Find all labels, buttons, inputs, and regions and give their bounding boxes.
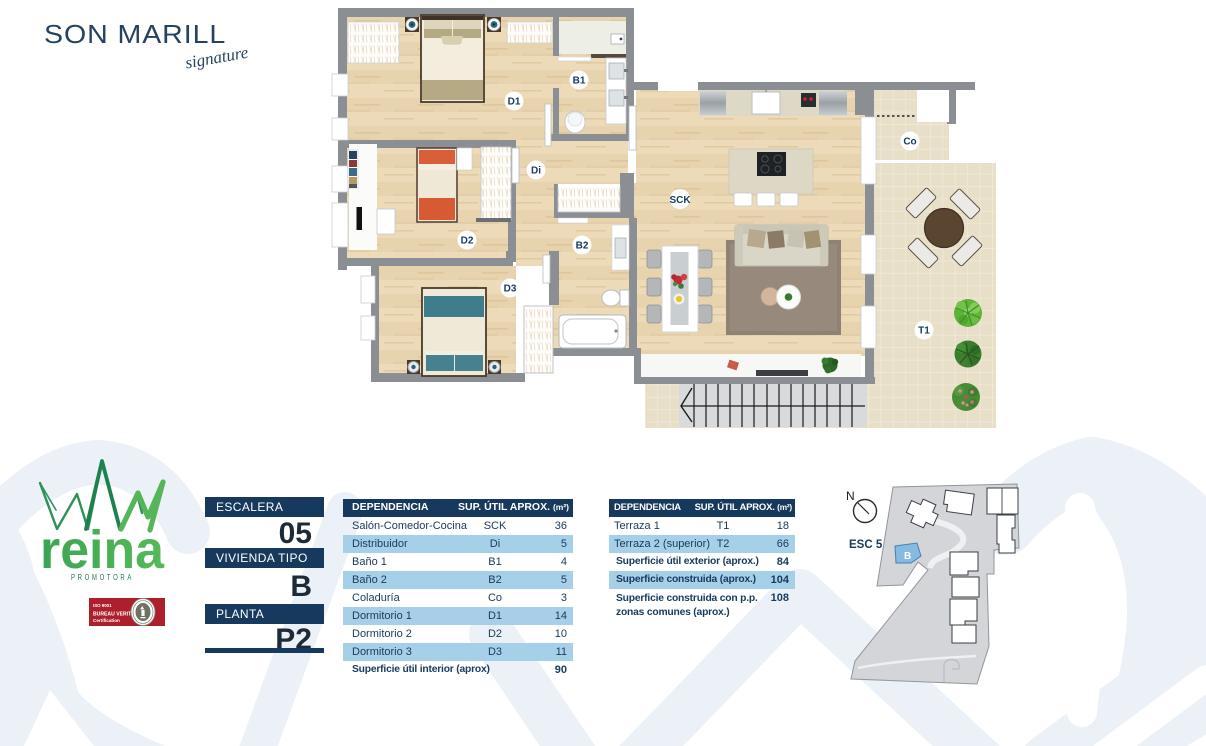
svg-text:ISO 9001: ISO 9001 — [93, 603, 112, 608]
svg-text:B: B — [904, 551, 911, 562]
svg-text:Di: Di — [531, 166, 541, 177]
svg-text:D3: D3 — [504, 284, 517, 295]
svg-text:T1: T1 — [918, 326, 930, 337]
svg-text:reina: reina — [40, 520, 165, 580]
svg-text:Certification: Certification — [93, 618, 120, 623]
svg-text:D2: D2 — [461, 236, 474, 247]
svg-text:D1: D1 — [508, 97, 521, 108]
svg-text:N: N — [846, 489, 855, 503]
svg-text:ESC 5: ESC 5 — [849, 539, 883, 551]
svg-text:Co: Co — [903, 137, 916, 148]
svg-text:PROMOTORA: PROMOTORA — [71, 573, 134, 582]
svg-text:B1: B1 — [573, 76, 586, 87]
svg-text:B2: B2 — [576, 241, 589, 252]
svg-text:SCK: SCK — [669, 195, 691, 206]
